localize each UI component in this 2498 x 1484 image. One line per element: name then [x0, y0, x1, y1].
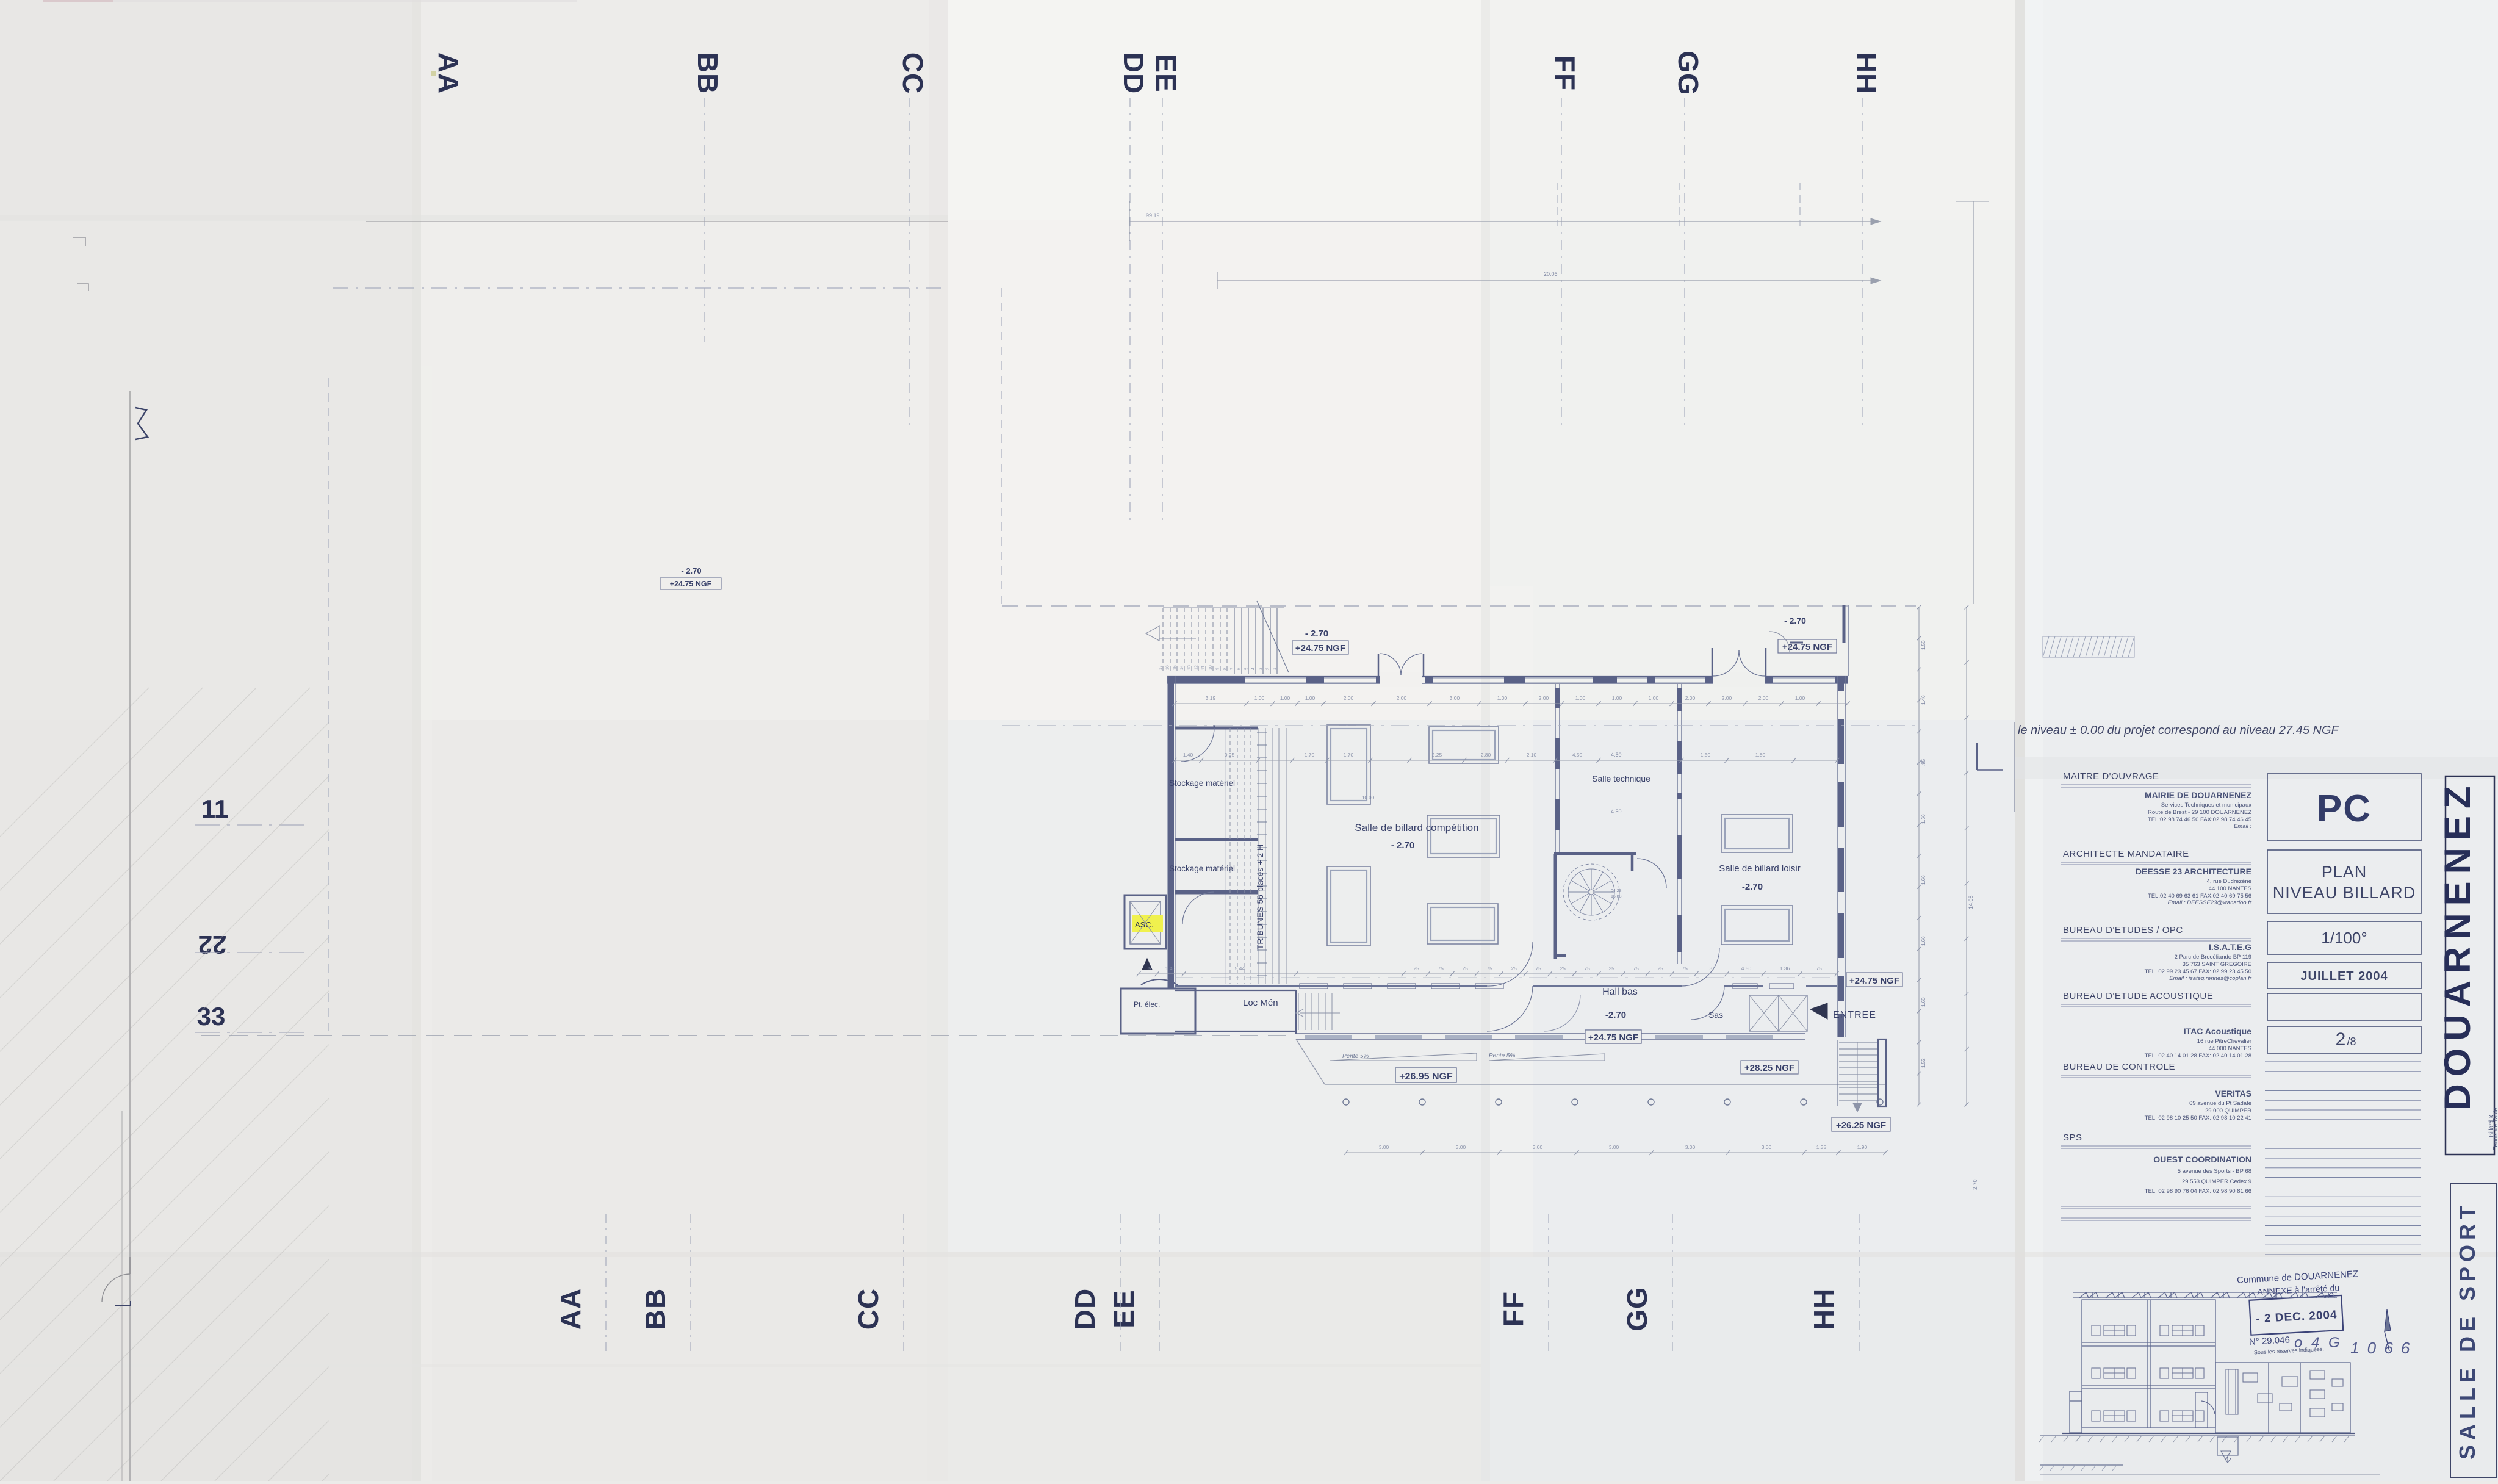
svg-text:2.00: 2.00 — [1685, 695, 1696, 701]
svg-text:4.50: 4.50 — [1611, 752, 1622, 758]
svg-text:1.50: 1.50 — [1921, 640, 1926, 650]
svg-text:.75: .75 — [1583, 965, 1590, 971]
svg-text:.25: .25 — [1607, 965, 1614, 971]
svg-text:1.90: 1.90 — [1857, 1144, 1868, 1150]
svg-text:TEL: 02 98 10 25 50 FAX: 02 9: TEL: 02 98 10 25 50 FAX: 02 98 10 22 41 — [2145, 1115, 2251, 1122]
svg-text:EE: EE — [1150, 54, 1182, 92]
svg-text:8: 8 — [1223, 668, 1227, 670]
svg-text:TEL: 02 40 14 01 28 FAX: 02 4: TEL: 02 40 14 01 28 FAX: 02 40 14 01 28 — [2145, 1053, 2251, 1059]
svg-text:MAIRIE DE DOUARNENEZ: MAIRIE DE DOUARNENEZ — [2145, 790, 2251, 800]
svg-text:TEL: 02 99 23 45 67 FAX: 02 9: TEL: 02 99 23 45 67 FAX: 02 99 23 45 50 — [2145, 968, 2251, 975]
svg-text:ITAC Acoustique: ITAC Acoustique — [2184, 1026, 2251, 1036]
svg-text:2.70: 2.70 — [1972, 1179, 1978, 1190]
svg-text:22: 22 — [198, 931, 227, 959]
svg-text:29 000 QUIMPER: 29 000 QUIMPER — [2205, 1108, 2251, 1114]
svg-text:-2.70: -2.70 — [1742, 882, 1763, 892]
svg-text:Pente 5%: Pente 5% — [1342, 1053, 1369, 1060]
svg-text:1.00: 1.00 — [1795, 695, 1805, 701]
svg-text:1: 1 — [1273, 668, 1277, 670]
svg-text:+24.75 NGF: +24.75 NGF — [1295, 643, 1345, 654]
svg-text:4.50: 4.50 — [1572, 752, 1583, 758]
svg-text:- 2.70: - 2.70 — [1391, 840, 1414, 851]
svg-text:29 553 QUIMPER Cedex 9: 29 553 QUIMPER Cedex 9 — [2182, 1178, 2251, 1185]
svg-text:1.40: 1.40 — [1183, 752, 1193, 758]
svg-text:.37: .37 — [1708, 965, 1715, 971]
svg-text:- 2.70: - 2.70 — [1784, 616, 1806, 625]
svg-text:13: 13 — [1187, 665, 1192, 670]
svg-text:.25: .25 — [1412, 965, 1419, 971]
svg-text:-2.70: -2.70 — [1605, 1010, 1626, 1020]
svg-text:2.00: 2.00 — [1722, 695, 1732, 701]
svg-text:7: 7 — [1230, 668, 1234, 670]
svg-text:TRIBUNES 56 places + 2 H: TRIBUNES 56 places + 2 H — [1255, 845, 1265, 949]
svg-text:1.80: 1.80 — [1755, 752, 1766, 758]
svg-text:14.08: 14.08 — [1968, 895, 1974, 909]
svg-text:3.00: 3.00 — [1685, 1144, 1696, 1150]
svg-text:Pt. élec.: Pt. élec. — [1134, 1000, 1160, 1009]
svg-text:FF: FF — [1497, 1291, 1529, 1327]
svg-text:GG: GG — [1672, 51, 1704, 96]
svg-text:1.00: 1.00 — [1254, 695, 1265, 701]
svg-text:DOUARNENEZ: DOUARNENEZ — [2437, 779, 2478, 1110]
svg-text:1.40: 1.40 — [1921, 695, 1926, 705]
svg-text:16.88: 16.88 — [1611, 895, 1622, 899]
svg-text:Pente 5%: Pente 5% — [1489, 1053, 1515, 1059]
svg-text:MAITRE D'OUVRAGE: MAITRE D'OUVRAGE — [2063, 771, 2159, 782]
svg-text:- 2.70: - 2.70 — [1305, 629, 1328, 639]
svg-text:5.44: 5.44 — [1235, 965, 1245, 971]
svg-text:11: 11 — [1201, 666, 1206, 670]
svg-text:.75: .75 — [1632, 965, 1639, 971]
svg-text:1.52: 1.52 — [1921, 1058, 1926, 1068]
svg-text:3.00: 3.00 — [1456, 1144, 1466, 1150]
svg-text:.75: .75 — [1436, 965, 1444, 971]
svg-text:FF: FF — [1549, 56, 1581, 91]
svg-text:+28.25 NGF: +28.25 NGF — [1744, 1063, 1794, 1073]
svg-text:1.00: 1.00 — [1305, 695, 1316, 701]
svg-text:Salle de billard compétition: Salle de billard compétition — [1355, 822, 1478, 834]
svg-text:+24.75 NGF: +24.75 NGF — [1849, 976, 1899, 986]
svg-text:2.25: 2.25 — [1432, 752, 1442, 758]
svg-text:Loc Mén: Loc Mén — [1243, 998, 1278, 1008]
svg-text:1/100°: 1/100° — [2321, 929, 2367, 947]
svg-text:.75: .75 — [1534, 965, 1541, 971]
svg-text:Salle de billard loisir: Salle de billard loisir — [1719, 863, 1800, 874]
svg-text:1.35: 1.35 — [1816, 1144, 1827, 1150]
svg-text:I.S.A.T.E.G: I.S.A.T.E.G — [2209, 942, 2251, 952]
svg-text:3.00: 3.00 — [1450, 695, 1460, 701]
svg-text:Tennis de Table: Tennis de Table — [2493, 1108, 2498, 1150]
svg-text:1.60: 1.60 — [1921, 814, 1926, 824]
svg-text:PC: PC — [2317, 788, 2372, 830]
svg-text:1.40: 1.40 — [1165, 965, 1176, 971]
svg-text:TEL: 02 98 90 76 04 FAX: 02 9: TEL: 02 98 90 76 04 FAX: 02 98 90 81 66 — [2145, 1188, 2251, 1195]
svg-text:BUREAU D'ETUDES / OPC: BUREAU D'ETUDES / OPC — [2063, 925, 2183, 935]
svg-text:o 4 G: o 4 G — [2294, 1335, 2342, 1351]
svg-text:2: 2 — [2336, 1029, 2346, 1050]
svg-text:14: 14 — [1180, 665, 1184, 670]
svg-text:Stockage matériel: Stockage matériel — [1169, 779, 1235, 788]
svg-text:3.19: 3.19 — [1206, 695, 1216, 701]
svg-text:1.60: 1.60 — [1921, 997, 1926, 1007]
svg-text:3: 3 — [1259, 668, 1263, 670]
svg-text:.25: .25 — [1656, 965, 1663, 971]
svg-text:BUREAU DE CONTROLE: BUREAU DE CONTROLE — [2063, 1062, 2175, 1072]
svg-text:N° 29.046: N° 29.046 — [2249, 1335, 2291, 1347]
svg-text:Services Techniques et municip: Services Techniques et municipaux — [2161, 802, 2251, 809]
svg-text:2: 2 — [1266, 668, 1270, 670]
svg-text:2.80: 2.80 — [1481, 752, 1491, 758]
svg-text:VERITAS: VERITAS — [2215, 1089, 2251, 1098]
svg-text:BUREAU D'ETUDE ACOUSTIQUE: BUREAU D'ETUDE ACOUSTIQUE — [2063, 991, 2213, 1001]
svg-text:ENTREE: ENTREE — [1833, 1010, 1876, 1020]
svg-text:3.00: 3.00 — [1379, 1144, 1389, 1150]
svg-text:/8: /8 — [2347, 1036, 2356, 1048]
svg-text:.25: .25 — [1558, 965, 1566, 971]
svg-text:CC: CC — [897, 52, 929, 94]
svg-text:- 2.70: - 2.70 — [681, 566, 701, 575]
svg-text:Email : isateg.rennes@coplan: Email : isateg.rennes@coplan.fr — [2169, 975, 2252, 982]
svg-text:35 763 SAINT GREGOIRE: 35 763 SAINT GREGOIRE — [2183, 961, 2251, 968]
svg-text:2.10: 2.10 — [1527, 752, 1537, 758]
svg-text:33: 33 — [197, 1002, 226, 1031]
svg-text:GG: GG — [1621, 1286, 1653, 1331]
svg-text:.25: .25 — [1461, 965, 1468, 971]
svg-text:NIVEAU BILLARD: NIVEAU BILLARD — [2273, 884, 2416, 902]
svg-text:1.00: 1.00 — [1280, 695, 1290, 701]
svg-text:4: 4 — [1251, 668, 1256, 670]
svg-text:1.70: 1.70 — [1305, 752, 1315, 758]
svg-text:1.00: 1.00 — [1649, 695, 1659, 701]
svg-text:Stockage matériel: Stockage matériel — [1169, 864, 1235, 873]
svg-text:.95: .95 — [1921, 758, 1926, 766]
svg-text:2.00: 2.00 — [1758, 695, 1769, 701]
svg-text:ARCHITECTE MANDATAIRE: ARCHITECTE MANDATAIRE — [2063, 849, 2189, 859]
svg-text:OUEST COORDINATION: OUEST COORDINATION — [2153, 1154, 2251, 1164]
svg-text:1.60: 1.60 — [1921, 936, 1926, 946]
svg-text:0.95: 0.95 — [1225, 752, 1235, 758]
svg-text:4.50: 4.50 — [1611, 809, 1622, 815]
svg-text:DEESSE 23 ARCHITECTURE: DEESSE 23 ARCHITECTURE — [2136, 866, 2251, 876]
svg-text:HH: HH — [1808, 1288, 1840, 1330]
svg-text:Salle technique: Salle technique — [1592, 774, 1650, 783]
svg-text:SALLE DE SPORT: SALLE DE SPORT — [2455, 1201, 2480, 1460]
svg-text:2.00: 2.00 — [1397, 695, 1407, 701]
svg-text:PLAN: PLAN — [2322, 863, 2367, 881]
svg-text:44 000 NANTES: 44 000 NANTES — [2209, 1045, 2251, 1052]
svg-text:BB: BB — [639, 1288, 671, 1330]
svg-text:1.60: 1.60 — [1921, 875, 1926, 885]
svg-text:DD: DD — [1069, 1288, 1101, 1330]
svg-text:.25: .25 — [1510, 965, 1517, 971]
svg-text:+24.75 NGF: +24.75 NGF — [1588, 1032, 1638, 1043]
svg-text:1.50: 1.50 — [1701, 752, 1711, 758]
svg-text:99.19: 99.19 — [1146, 212, 1160, 218]
svg-text:44 100 NANTES: 44 100 NANTES — [2209, 885, 2251, 892]
svg-text:+26.25 NGF: +26.25 NGF — [1836, 1120, 1886, 1131]
svg-text:3.00: 3.00 — [1762, 1144, 1772, 1150]
svg-text:Email :: Email : — [2234, 823, 2251, 830]
svg-text:TEL:02 98 74 46 50 FAX:02 98: TEL:02 98 74 46 50 FAX:02 98 74 46 45 — [2148, 816, 2251, 823]
svg-text:11: 11 — [201, 794, 228, 823]
svg-text:4, rue Dudrezène: 4, rue Dudrezène — [2207, 878, 2251, 885]
svg-text:1.70: 1.70 — [1344, 752, 1354, 758]
svg-text:SPS: SPS — [2063, 1133, 2082, 1143]
svg-text:1.00: 1.00 — [1612, 695, 1622, 701]
svg-text:Email : DEESSE23@wanadoo.fr: Email : DEESSE23@wanadoo.fr — [2168, 899, 2252, 906]
svg-text:1.00: 1.00 — [1497, 695, 1508, 701]
svg-text:le niveau ± 0.00 du projet c: le niveau ± 0.00 du projet correspond au… — [2018, 724, 2340, 737]
svg-text:10.00: 10.00 — [1362, 795, 1375, 801]
svg-text:AA: AA — [555, 1288, 586, 1330]
svg-text:JUILLET 2004: JUILLET 2004 — [2300, 970, 2388, 983]
svg-text:9: 9 — [1216, 668, 1220, 670]
svg-text:17: 17 — [1159, 665, 1163, 670]
svg-text:+24.75 NGF: +24.75 NGF — [670, 580, 712, 588]
svg-text:1.36: 1.36 — [1780, 965, 1790, 971]
svg-text:DD: DD — [1118, 52, 1150, 94]
svg-text:.75: .75 — [1680, 965, 1688, 971]
svg-text:2.00: 2.00 — [1344, 695, 1354, 701]
svg-text:.75: .75 — [1485, 965, 1492, 971]
svg-text:3.00: 3.00 — [1533, 1144, 1543, 1150]
svg-text:5 avenue des Sports - BP 68: 5 avenue des Sports - BP 68 — [2178, 1168, 2251, 1175]
svg-text:12: 12 — [1195, 665, 1199, 670]
svg-text:AA: AA — [433, 52, 464, 94]
svg-text:6: 6 — [1237, 668, 1242, 670]
svg-text:Route de Brest - 29 100 DOUARN: Route de Brest - 29 100 DOUARNENEZ — [2148, 809, 2251, 816]
svg-text:2 Parc de Brocéliande BP 119: 2 Parc de Brocéliande BP 119 — [2175, 954, 2251, 960]
svg-text:+26.95 NGF: +26.95 NGF — [1399, 1072, 1453, 1082]
svg-text:3.00: 3.00 — [1609, 1144, 1619, 1150]
svg-text:CC: CC — [852, 1288, 884, 1330]
svg-text:5: 5 — [1244, 668, 1248, 670]
svg-text:Hall bas: Hall bas — [1602, 987, 1638, 997]
svg-text:04.28: 04.28 — [1611, 889, 1622, 893]
svg-text:16 rue PitreChevalier: 16 rue PitreChevalier — [2197, 1038, 2251, 1045]
svg-text:.65: .65 — [1144, 965, 1151, 971]
svg-text:Sas: Sas — [1708, 1010, 1723, 1020]
svg-text:15: 15 — [1173, 665, 1177, 670]
svg-text:10: 10 — [1209, 665, 1213, 670]
svg-text:20.06: 20.06 — [1544, 271, 1558, 277]
svg-text:.75: .75 — [1815, 965, 1822, 971]
svg-text:TEL:02 40 69 63 61 FAX:02 40: TEL:02 40 69 63 61 FAX:02 40 69 75 56 — [2148, 893, 2251, 899]
svg-text:HH: HH — [1851, 52, 1882, 94]
svg-text:16: 16 — [1166, 665, 1170, 670]
svg-text:1 0 6 6: 1 0 6 6 — [2350, 1339, 2412, 1357]
svg-text:EE: EE — [1108, 1289, 1140, 1328]
svg-text:69 avenue du Pt Sadate: 69 avenue du Pt Sadate — [2189, 1100, 2251, 1107]
svg-text:BB: BB — [692, 52, 724, 94]
svg-text:1.00: 1.00 — [1575, 695, 1586, 701]
svg-text:4.50: 4.50 — [1741, 965, 1752, 971]
svg-text:2.00: 2.00 — [1539, 695, 1549, 701]
